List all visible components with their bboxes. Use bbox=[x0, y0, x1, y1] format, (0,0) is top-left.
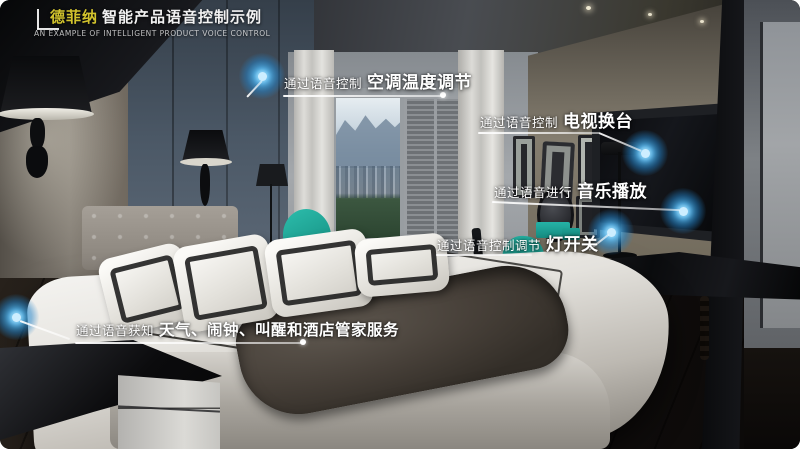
callout-light: 通过语音控制调节 灯开关 bbox=[437, 230, 599, 255]
title-bracket-vertical bbox=[37, 9, 39, 29]
callout-service-label: 天气、闹钟、叫醒和酒店管家服务 bbox=[159, 318, 399, 340]
callout-ac-prefix: 通过语音控制 bbox=[284, 73, 362, 92]
callout-tv-label: 电视换台 bbox=[563, 107, 633, 132]
callout-ac-label: 空调温度调节 bbox=[367, 68, 472, 93]
hotspot-dot-ac bbox=[239, 53, 285, 99]
callout-music-label: 音乐播放 bbox=[577, 177, 647, 202]
callout-light-prefix: 通过语音控制调节 bbox=[437, 235, 541, 254]
wall-lamp-rim bbox=[0, 108, 94, 120]
slide-title: 德菲纳 智能产品语音控制示例 bbox=[50, 6, 262, 27]
callout-tv-prefix: 通过语音控制 bbox=[480, 112, 558, 131]
desk-leg bbox=[700, 296, 709, 360]
ceiling-spotlight bbox=[586, 6, 591, 10]
leader-line-ac bbox=[283, 95, 443, 97]
pillow-stripe bbox=[184, 245, 268, 321]
pillow bbox=[354, 232, 451, 298]
ceiling-spotlight bbox=[648, 13, 652, 16]
title-text: 智能产品语音控制示例 bbox=[102, 6, 262, 27]
pillow-stripe bbox=[366, 244, 439, 286]
panel-seam bbox=[278, 0, 280, 250]
floor-lamp-shade bbox=[256, 164, 288, 186]
title-subtitle: AN EXAMPLE OF INTELLIGENT PRODUCT VOICE … bbox=[34, 29, 270, 38]
wall-lamp-2-stem bbox=[200, 164, 210, 206]
wall-lamp-stem-drop bbox=[26, 146, 48, 178]
ceiling-spotlight bbox=[700, 20, 704, 23]
wall-lamp-shade bbox=[0, 56, 92, 114]
callout-music-prefix: 通过语音进行 bbox=[494, 182, 572, 201]
hotspot-dot-tv bbox=[622, 130, 668, 176]
callout-service-prefix: 通过语音获知 bbox=[76, 320, 154, 339]
leader-line-tv bbox=[478, 132, 600, 134]
callout-service: 通过语音获知 天气、闹钟、叫醒和酒店管家服务 bbox=[76, 318, 399, 340]
shutter-rail bbox=[434, 98, 437, 240]
hotel-room-photo: 通过语音控制 空调温度调节 通过语音控制 电视换台 通过语音进行 音乐播放 通过… bbox=[0, 0, 800, 449]
presentation-slide: 通过语音控制 空调温度调节 通过语音控制 电视换台 通过语音进行 音乐播放 通过… bbox=[0, 0, 800, 449]
callout-music: 通过语音进行 音乐播放 bbox=[494, 177, 647, 202]
pillow-stripe bbox=[275, 240, 362, 307]
door-floor-shadow bbox=[744, 348, 800, 449]
city-skyline bbox=[336, 166, 400, 198]
hotspot-dot-music bbox=[660, 188, 706, 234]
callout-tv: 通过语音控制 电视换台 bbox=[480, 107, 633, 132]
leader-line-service bbox=[75, 342, 303, 344]
brand-name: 德菲纳 bbox=[50, 6, 98, 27]
callout-ac: 通过语音控制 空调温度调节 bbox=[284, 68, 472, 93]
callout-light-label: 灯开关 bbox=[546, 230, 599, 255]
